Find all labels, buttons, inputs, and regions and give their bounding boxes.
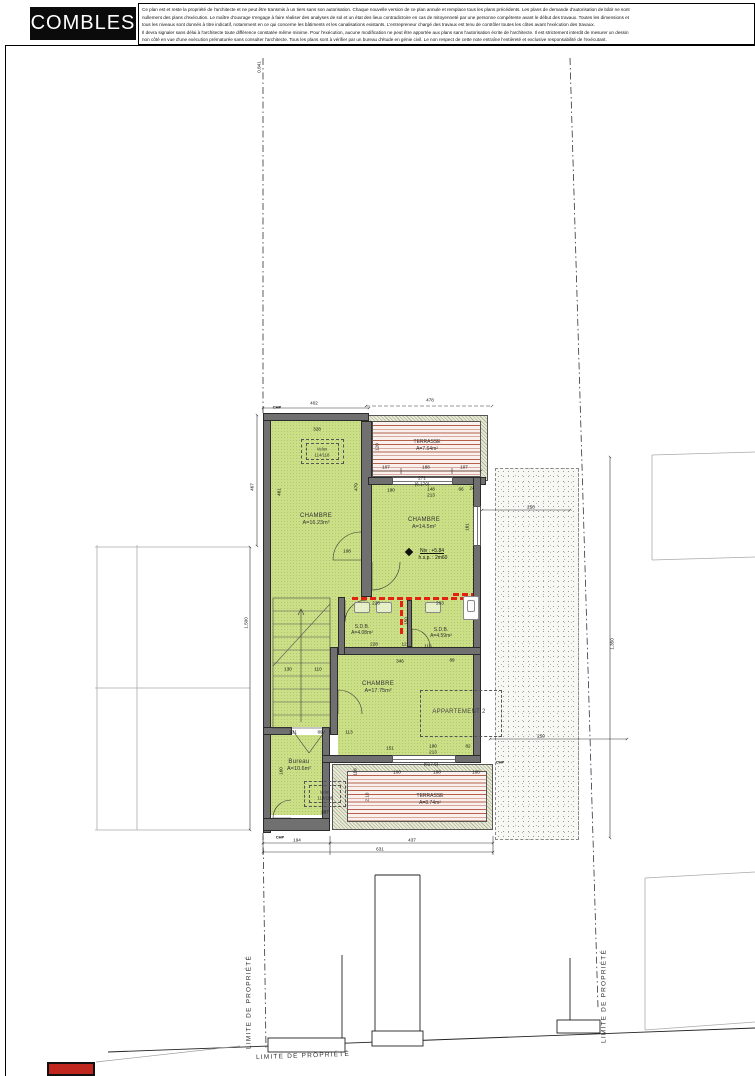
- plan-label: LIMITE DE PROPRIÉTÉ: [601, 949, 608, 1043]
- plan-label: 250: [527, 505, 535, 510]
- plan-label: 160: [279, 767, 284, 775]
- plan-label: 0.841: [257, 61, 262, 73]
- plan-label: 114/118: [318, 796, 333, 801]
- plan-label: A=4.59m²: [430, 633, 452, 639]
- plan-label: 2.10: [365, 793, 370, 802]
- plan-label: A=14.5m²: [412, 524, 436, 530]
- plan-label: A=4.08m²: [351, 630, 373, 636]
- plan-label: 203: [436, 601, 444, 606]
- plan-label: 24: [469, 486, 474, 491]
- plan-label: 188: [433, 770, 441, 775]
- plan-label: 213: [429, 750, 437, 755]
- plan-label: 479: [354, 483, 359, 491]
- drawing-sheet: COMBLES Ce plan est et reste la propriét…: [0, 0, 755, 1076]
- plan-label: 120: [375, 443, 380, 451]
- plan-label: TERRASSE: [417, 793, 444, 799]
- plan-label: A=7.64m²: [416, 446, 438, 452]
- plan-label: Bureau: [288, 759, 309, 765]
- plan-label: 151: [386, 746, 394, 751]
- plan-label: 226: [372, 601, 380, 606]
- plan-label: A=8.74m²: [419, 800, 441, 806]
- plan-label: 100: [393, 770, 401, 775]
- plan-label: 194: [293, 838, 301, 843]
- plan-labels-layer: CHAMBREA=16.23m²CHAMBREA=14.5m²CHAMBREA=…: [0, 0, 755, 1076]
- plan-label: 107: [382, 465, 390, 470]
- plan-label: LIMITE DE PROPRIÉTÉ: [246, 955, 253, 1049]
- plan-label: 228: [370, 642, 378, 647]
- plan-label: 100: [472, 770, 480, 775]
- plan-label: 107: [460, 465, 468, 470]
- plan-label: LIMITE DE PROPRIÉTÉ: [256, 1051, 350, 1061]
- plan-label: 467: [250, 483, 255, 491]
- plan-label: CHAMBRE: [300, 513, 332, 519]
- plan-label: 1.350: [610, 638, 615, 650]
- plan-label: 346: [396, 659, 404, 664]
- plan-label: 1.500: [244, 617, 249, 629]
- plan-label: 131: [289, 730, 297, 735]
- plan-label: CHAMBRE: [408, 517, 440, 523]
- plan-label: A=10.6m²: [287, 766, 311, 772]
- plan-label: A=16.23m²: [302, 520, 329, 526]
- plan-label: 271: [418, 476, 426, 481]
- plan-label: 116: [424, 644, 431, 649]
- plan-label: 328: [313, 427, 321, 432]
- plan-label: 190: [429, 744, 437, 749]
- plan-label: 66: [458, 487, 463, 492]
- plan-label: 190: [387, 488, 395, 493]
- plan-label: Niv : +5.84: [420, 548, 444, 554]
- plan-label: 116: [353, 768, 358, 775]
- plan-label: h.s.p. : 2m60: [419, 555, 448, 561]
- plan-label: 148: [427, 487, 435, 492]
- plan-label: CHAMBRE: [362, 681, 394, 687]
- plan-label: Velux: [317, 447, 328, 452]
- plan-label: 188: [422, 465, 430, 470]
- plan-label: A=17.75m²: [364, 688, 391, 694]
- plan-label: 108: [343, 549, 351, 554]
- plan-label: 89: [317, 730, 322, 735]
- plan-label: 113: [345, 730, 352, 735]
- plan-label: 631: [376, 847, 384, 852]
- plan-label: Velux: [320, 790, 331, 795]
- plan-label: 114/118: [315, 453, 330, 458]
- plan-label: TERRASSE: [414, 439, 441, 445]
- plan-label: (617.5): [424, 762, 439, 767]
- plan-label: 250: [537, 734, 545, 739]
- plan-label: 130: [284, 667, 292, 672]
- plan-label: 213: [427, 493, 435, 498]
- plan-label: 161: [465, 523, 470, 531]
- plan-label: CHP: [496, 760, 504, 765]
- plan-label: APPARTEMENT 2: [432, 709, 485, 715]
- plan-label: 478: [426, 398, 434, 403]
- plan-label: 437: [408, 838, 416, 843]
- plan-label: 82: [465, 744, 470, 749]
- plan-label: 402: [310, 401, 318, 406]
- plan-label: 461: [277, 488, 282, 496]
- plan-label: 12: [401, 642, 406, 647]
- plan-label: 287: [321, 810, 329, 815]
- plan-label: 89: [449, 658, 454, 663]
- plan-label: 110: [314, 667, 321, 672]
- plan-label: 150: [404, 617, 409, 625]
- plan-label: CHP: [273, 405, 281, 410]
- plan-label: CHP: [276, 835, 284, 840]
